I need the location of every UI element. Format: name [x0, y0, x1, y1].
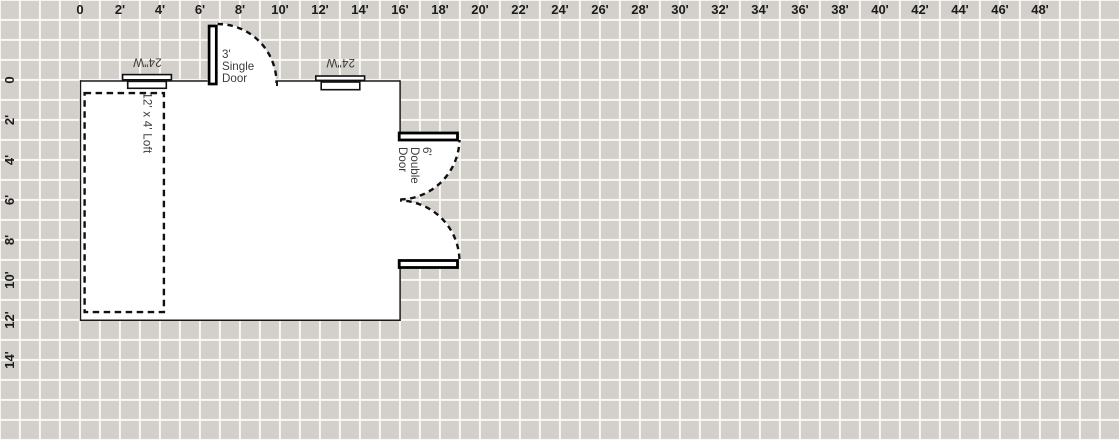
svg-text:2': 2'	[2, 115, 17, 125]
svg-text:46': 46'	[991, 2, 1009, 17]
svg-text:Door: Door	[396, 147, 409, 172]
svg-text:4': 4'	[155, 2, 165, 17]
svg-text:6': 6'	[2, 195, 17, 205]
svg-text:Door: Door	[222, 72, 247, 85]
svg-text:10': 10'	[271, 2, 289, 17]
svg-text:0: 0	[2, 76, 17, 83]
svg-text:6': 6'	[195, 2, 205, 17]
svg-text:8': 8'	[2, 235, 17, 245]
svg-text:14': 14'	[351, 2, 369, 17]
svg-text:22': 22'	[511, 2, 529, 17]
svg-text:12': 12'	[2, 311, 17, 329]
svg-text:12' x 4' Loft: 12' x 4' Loft	[141, 92, 154, 154]
svg-text:16': 16'	[391, 2, 409, 17]
svg-text:0: 0	[76, 2, 83, 17]
svg-text:26': 26'	[591, 2, 609, 17]
svg-text:20': 20'	[471, 2, 489, 17]
svg-text:28': 28'	[631, 2, 649, 17]
svg-text:48': 48'	[1031, 2, 1049, 17]
svg-text:14': 14'	[2, 351, 17, 369]
svg-text:34': 34'	[751, 2, 769, 17]
svg-text:24': 24'	[551, 2, 569, 17]
svg-text:36': 36'	[791, 2, 809, 17]
svg-text:4': 4'	[2, 155, 17, 165]
svg-text:32': 32'	[711, 2, 729, 17]
svg-text:18': 18'	[431, 2, 449, 17]
svg-text:10': 10'	[2, 271, 17, 289]
svg-text:12': 12'	[311, 2, 329, 17]
svg-text:38': 38'	[831, 2, 849, 17]
svg-text:44': 44'	[951, 2, 969, 17]
svg-text:30': 30'	[671, 2, 689, 17]
svg-text:24"W: 24"W	[133, 56, 162, 69]
svg-text:42': 42'	[911, 2, 929, 17]
svg-text:40': 40'	[871, 2, 889, 17]
svg-text:24"W: 24"W	[326, 56, 355, 69]
svg-text:2': 2'	[115, 2, 125, 17]
svg-text:8': 8'	[235, 2, 245, 17]
